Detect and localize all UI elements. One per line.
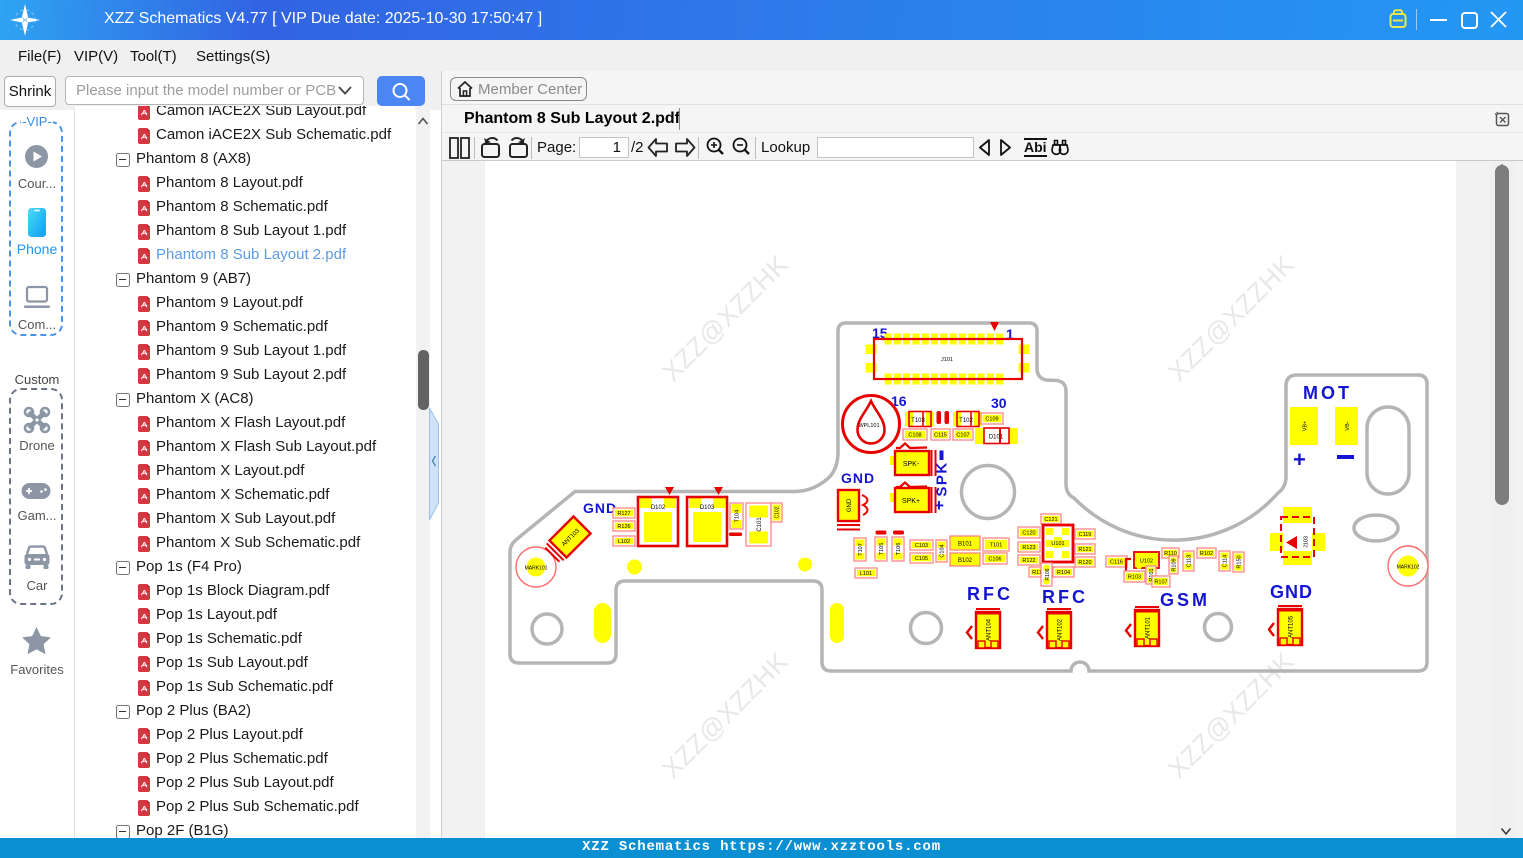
svg-text:U102: U102 [1140,559,1153,565]
svg-text:MARK102: MARK102 [1397,565,1420,571]
svg-text:R103: R103 [1128,575,1141,581]
svg-text:T103: T103 [911,418,925,424]
svg-text:GND: GND [583,500,617,516]
svg-text:30: 30 [991,395,1007,411]
svg-text:GND: GND [1270,582,1313,602]
svg-text:GND: GND [847,498,853,512]
svg-text:U101: U101 [1051,541,1064,547]
svg-text:C105: C105 [915,556,928,562]
svg-text:T102: T102 [959,418,973,424]
svg-text:VB-: VB- [1345,421,1351,430]
svg-text:R150: R150 [1237,555,1243,568]
svg-text:XZZ@XZZHK: XZZ@XZZHK [656,249,794,387]
svg-text:SPK+: SPK+ [902,498,920,505]
svg-text:C106: C106 [988,557,1001,563]
svg-text:ANT101: ANT101 [1146,616,1152,639]
svg-text:L102: L102 [618,539,630,545]
svg-text:RFC: RFC [967,584,1013,604]
svg-text:C120: C120 [1022,531,1035,537]
svg-text:R123: R123 [1022,545,1035,551]
svg-text:B101: B101 [958,542,973,548]
svg-text:GSM: GSM [1160,590,1210,610]
svg-text:XZZ@XZZHK: XZZ@XZZHK [1162,249,1300,387]
svg-text:D101: D101 [989,435,1004,441]
svg-text:XZZ@XZZHK: XZZ@XZZHK [1162,646,1300,784]
svg-text:C109: C109 [985,417,998,423]
svg-text:R126: R126 [617,524,630,530]
svg-text:C102: C102 [775,506,781,518]
svg-text:C107: C107 [956,433,969,439]
svg-text:R121: R121 [1078,547,1091,553]
svg-text:C115: C115 [934,433,947,439]
svg-text:R120: R120 [1078,560,1091,566]
svg-text:R107: R107 [1154,580,1167,586]
svg-text:R127: R127 [617,511,630,517]
svg-text:R122: R122 [1022,558,1035,564]
svg-text:R109: R109 [1172,558,1178,571]
svg-text:C116: C116 [1110,560,1123,566]
svg-text:+: + [1293,447,1306,472]
svg-text:C113: C113 [1187,555,1193,568]
svg-text:T104: T104 [735,510,741,523]
svg-text:ANT104: ANT104 [987,618,993,641]
svg-text:ANT102: ANT102 [1058,618,1064,641]
svg-text:XZZ@XZZHK: XZZ@XZZHK [656,646,794,784]
svg-text:B102: B102 [958,558,973,564]
svg-text:L101: L101 [860,571,872,577]
svg-text:VB+: VB+ [1303,421,1309,432]
svg-text:T107: T107 [858,543,864,556]
svg-text:D102: D102 [651,505,666,511]
svg-text:C104: C104 [940,544,946,557]
svg-text:MOT: MOT [1303,383,1352,403]
svg-text:MARK101: MARK101 [525,566,548,572]
svg-text:J101: J101 [941,357,953,363]
svg-text:WPL101: WPL101 [858,423,879,429]
svg-text:C114: C114 [1223,555,1229,568]
svg-text:C121: C121 [1044,517,1057,523]
svg-text:SPK-: SPK- [903,461,920,468]
svg-text:D103: D103 [700,505,715,511]
svg-text:RFC: RFC [1042,587,1088,607]
svg-text:R108: R108 [1045,568,1051,580]
svg-text:J103: J103 [1304,536,1310,548]
svg-text:C101: C101 [757,517,763,532]
svg-text:C108: C108 [908,433,921,439]
svg-text:GND: GND [841,470,875,486]
svg-text:T101: T101 [990,543,1003,549]
svg-text:R102: R102 [1200,551,1213,557]
svg-text:T106: T106 [896,543,902,556]
svg-text:R104: R104 [1057,570,1070,576]
svg-text:C103: C103 [915,543,928,549]
svg-text:ANT105: ANT105 [1289,615,1295,638]
svg-text:C119: C119 [1079,532,1092,538]
svg-text:T105: T105 [879,543,885,556]
